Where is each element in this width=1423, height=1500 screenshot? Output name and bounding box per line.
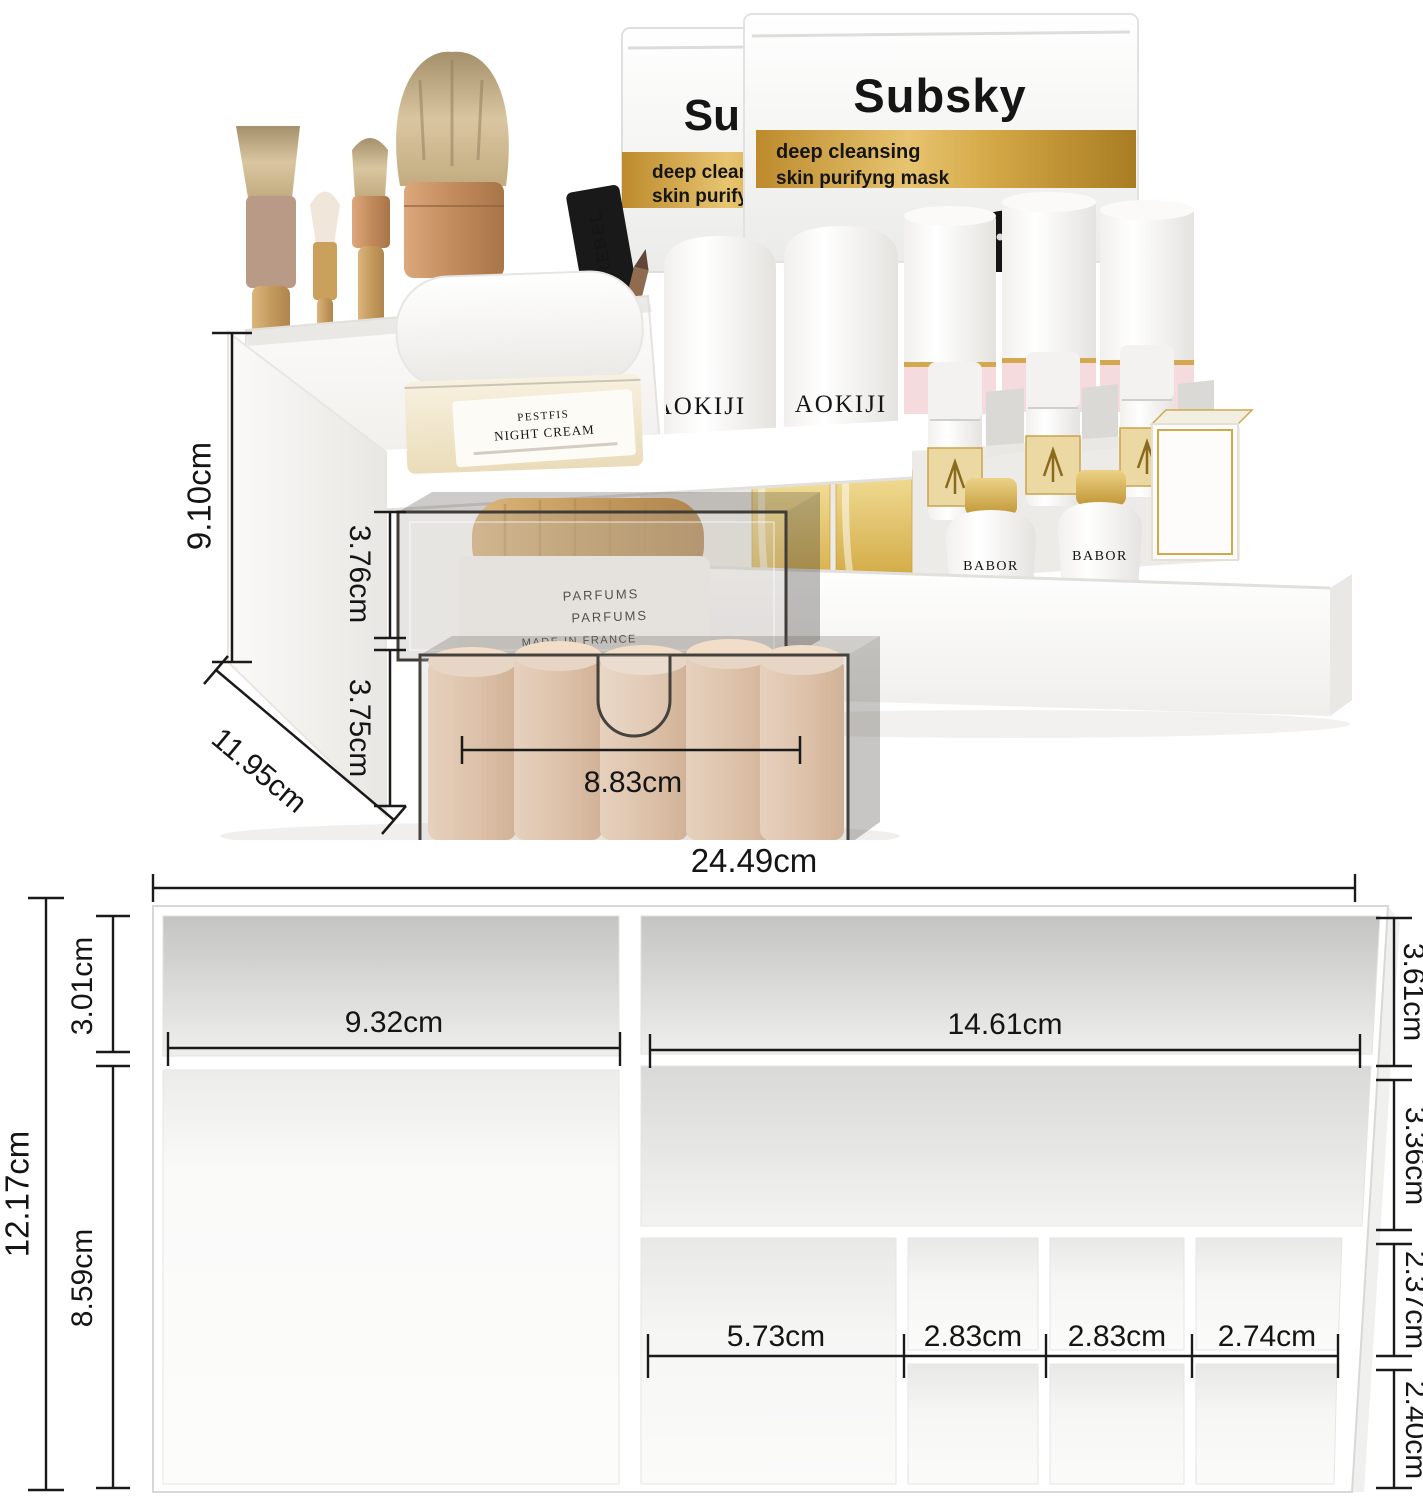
drawer-bottom-side (848, 636, 880, 840)
dim-label-col1: 5.73cm (727, 1320, 825, 1353)
serum-brand-text: AOKIJI (795, 391, 888, 418)
babor-brand-text: BABOR (963, 559, 1019, 574)
dim-label-col2: 2.83cm (924, 1320, 1022, 1353)
product-dimension-image: Subsky deep cleansing skin purifyng mask… (0, 0, 1423, 1500)
babor-brand-text: BABOR (1072, 549, 1128, 564)
dim-label-small-back: 2.37cm (1399, 1251, 1423, 1349)
drawer-bottom: 8.83cm (420, 636, 880, 840)
drawer-top: PARFUMS PARFUMS MADE IN FRANCE (398, 492, 820, 660)
compartment-right-mid (641, 1066, 1371, 1226)
dim-label-right-back: 3.61cm (1397, 943, 1423, 1041)
dim-label-col4: 2.74cm (1218, 1320, 1316, 1353)
dim-label-height: 9.10cm (181, 442, 218, 550)
dimension-diagram-section: 24.49cm 12.17cm 3.01cm 8.59cm 9.32cm (0, 840, 1423, 1500)
dim-label-drawer-width: 8.83cm (584, 766, 682, 799)
dim-label-small-front: 2.40cm (1399, 1381, 1423, 1479)
compartment-col2-front (908, 1364, 1038, 1484)
dim-label-left-front: 8.59cm (66, 1229, 99, 1327)
compartment-col1 (641, 1238, 896, 1484)
serum-brand-text-clipped: AOKIJI (654, 393, 747, 420)
lipstick-tube-2 (1026, 352, 1080, 506)
dim-label-col3: 2.83cm (1068, 1320, 1166, 1353)
compartment-col4-front (1196, 1364, 1337, 1484)
night-cream-jar: PESTFIS NIGHT CREAM (395, 270, 648, 474)
dim-label-total-width: 24.49cm (691, 842, 818, 879)
dim-label-drawer1-height: 3.76cm (343, 525, 376, 623)
dim-line-left-front (96, 1066, 130, 1488)
compartment-left-front (163, 1070, 619, 1484)
mask-brand-text: Subsky (853, 69, 1026, 122)
tray-side-face (1330, 574, 1352, 716)
dim-label-right-width: 14.61cm (947, 1008, 1062, 1041)
product-photo: Subsky deep cleansing skin purifyng mask… (0, 0, 1423, 840)
compartment-col3-front (1050, 1364, 1184, 1484)
mask-band-line1: deep cleansing (776, 141, 921, 163)
dim-label-left-width: 9.32cm (345, 1006, 443, 1039)
drawer-top-side (786, 492, 820, 660)
cosmetic-box (1152, 410, 1252, 560)
product-photo-section: Subsky deep cleansing skin purifyng mask… (0, 0, 1423, 840)
drawer-notch (598, 655, 670, 736)
dim-label-drawer2-height: 3.75cm (343, 679, 376, 777)
top-view-diagram: 24.49cm 12.17cm 3.01cm 8.59cm 9.32cm (0, 840, 1423, 1500)
makeup-brush-large (396, 52, 509, 278)
dim-label-left-back: 3.01cm (66, 937, 99, 1035)
mask-band-line2: skin purifyng mask (776, 168, 950, 189)
dim-label-right-mid: 3.36cm (1399, 1107, 1423, 1205)
dim-line-left-back (96, 916, 130, 1066)
dim-label-total-depth: 12.17cm (0, 1131, 36, 1258)
